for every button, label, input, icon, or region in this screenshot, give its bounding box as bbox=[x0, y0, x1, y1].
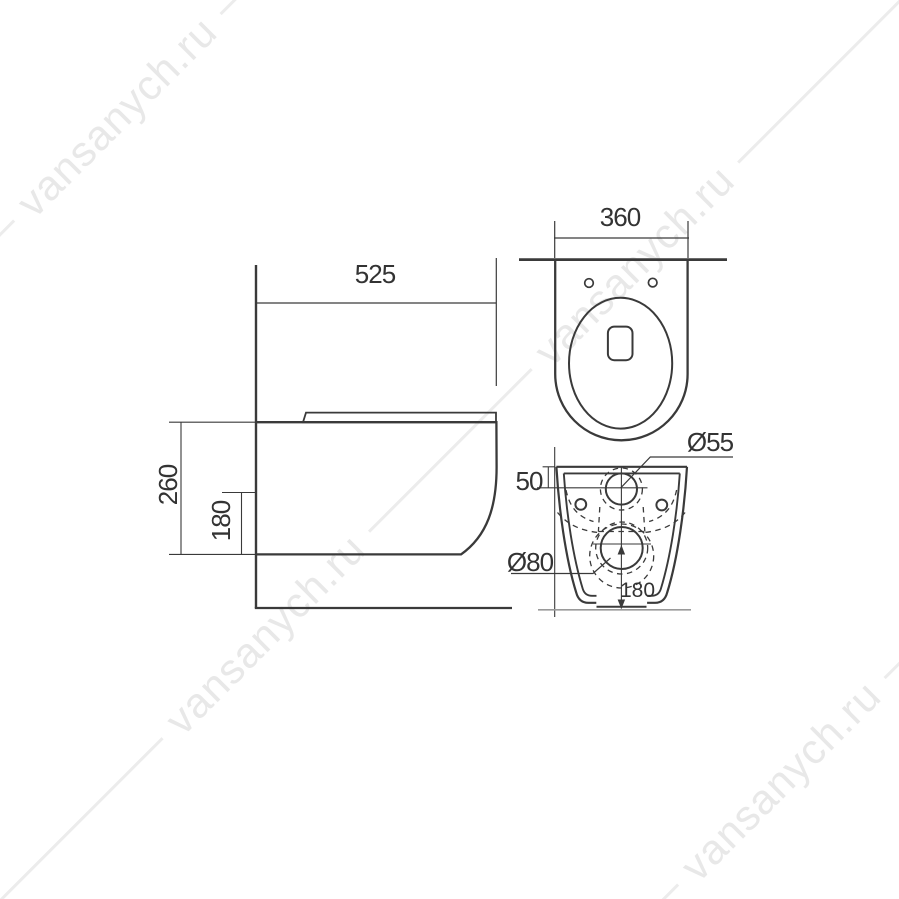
toilet-body-top bbox=[555, 260, 687, 440]
dim-label-body-height: 180 bbox=[207, 491, 235, 551]
mount-hole-right bbox=[648, 278, 657, 287]
channel-left-dashed bbox=[598, 507, 599, 532]
dim-label-depth: 525 bbox=[345, 260, 405, 288]
rear-left-outer bbox=[556, 467, 596, 603]
mount-hole-left bbox=[585, 279, 594, 288]
side-view bbox=[169, 258, 512, 608]
dim-label-outlet-height: 180 bbox=[610, 580, 665, 602]
arrow-up bbox=[618, 545, 626, 555]
dim-label-outlet-diameter: Ø80 bbox=[494, 548, 566, 576]
technical-drawing-canvas: vansanych.ru vansanych.ru vansanych.ru v… bbox=[0, 0, 899, 899]
dim-label-width: 360 bbox=[590, 203, 650, 231]
flush-opening bbox=[608, 327, 633, 361]
toilet-body-side bbox=[256, 422, 497, 554]
fix-hole-right bbox=[656, 500, 667, 511]
leader-d55 bbox=[621, 457, 733, 488]
dim-label-inlet-diameter: Ø55 bbox=[674, 428, 746, 456]
dim-label-inlet-offset: 50 bbox=[500, 467, 558, 495]
seat-lid bbox=[303, 413, 496, 423]
wing-right-upper-dashed bbox=[649, 490, 677, 522]
fix-hole-left bbox=[575, 499, 586, 510]
toilet-dimension-drawing bbox=[0, 0, 899, 899]
wing-right-lower-dashed bbox=[645, 513, 686, 533]
channel-right-dashed bbox=[643, 507, 645, 532]
rear-left-inner bbox=[564, 473, 597, 595]
bowl-opening bbox=[569, 298, 672, 429]
rear-right-inner bbox=[647, 473, 680, 595]
dim-label-height: 260 bbox=[154, 455, 182, 515]
wing-left-upper-dashed bbox=[566, 490, 594, 522]
top-view bbox=[519, 221, 727, 440]
